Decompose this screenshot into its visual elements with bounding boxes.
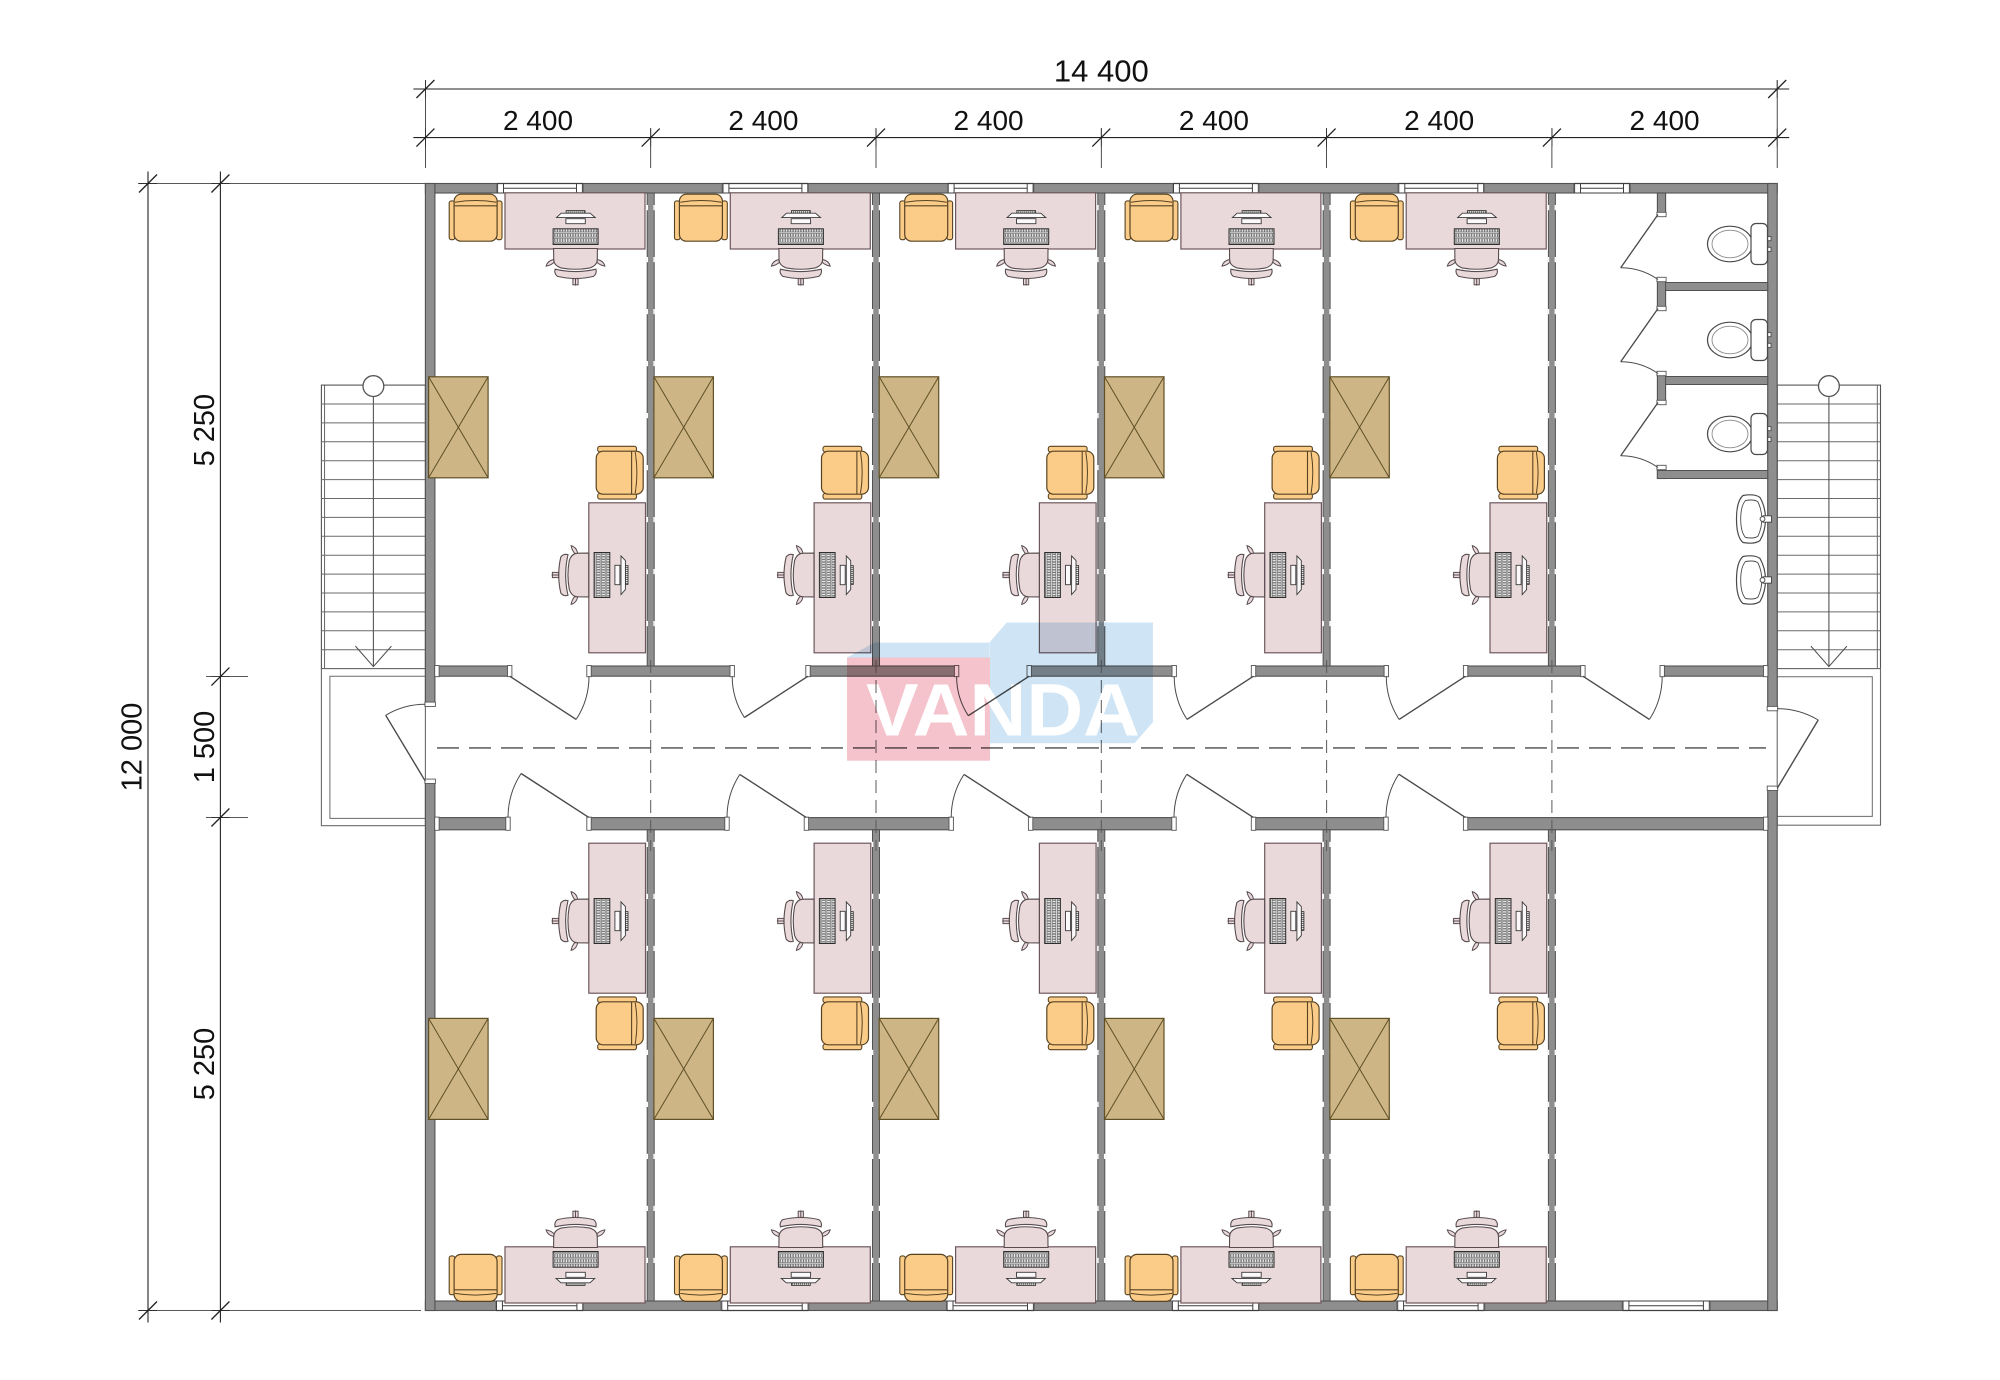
svg-text:VANDA: VANDA — [866, 669, 1140, 752]
svg-text:2 400: 2 400 — [1404, 105, 1474, 136]
svg-text:5 250: 5 250 — [189, 394, 221, 467]
svg-text:2 400: 2 400 — [1630, 105, 1700, 136]
svg-text:2 400: 2 400 — [503, 105, 573, 136]
svg-text:2 400: 2 400 — [1179, 105, 1249, 136]
svg-text:2 400: 2 400 — [728, 105, 798, 136]
svg-text:2 400: 2 400 — [954, 105, 1024, 136]
svg-text:14 400: 14 400 — [1054, 54, 1149, 89]
svg-text:12 000: 12 000 — [117, 703, 149, 792]
svg-text:5 250: 5 250 — [189, 1028, 221, 1101]
svg-text:1 500: 1 500 — [189, 711, 221, 784]
